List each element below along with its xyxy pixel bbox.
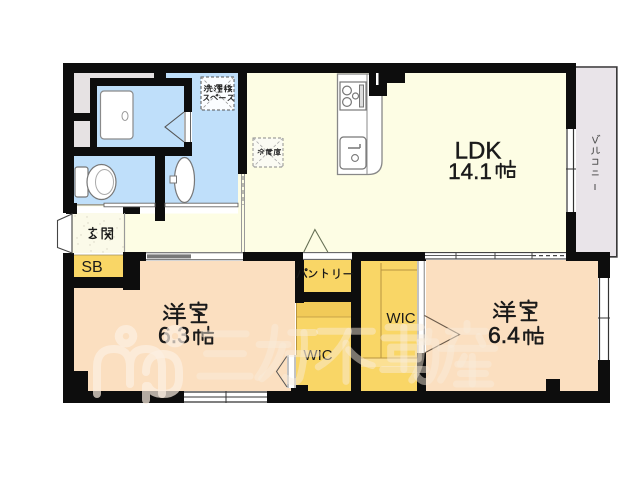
svg-text:6.4: 6.4 [488, 322, 520, 348]
svg-text:14.1: 14.1 [448, 159, 492, 184]
svg-text:SB: SB [81, 259, 102, 276]
